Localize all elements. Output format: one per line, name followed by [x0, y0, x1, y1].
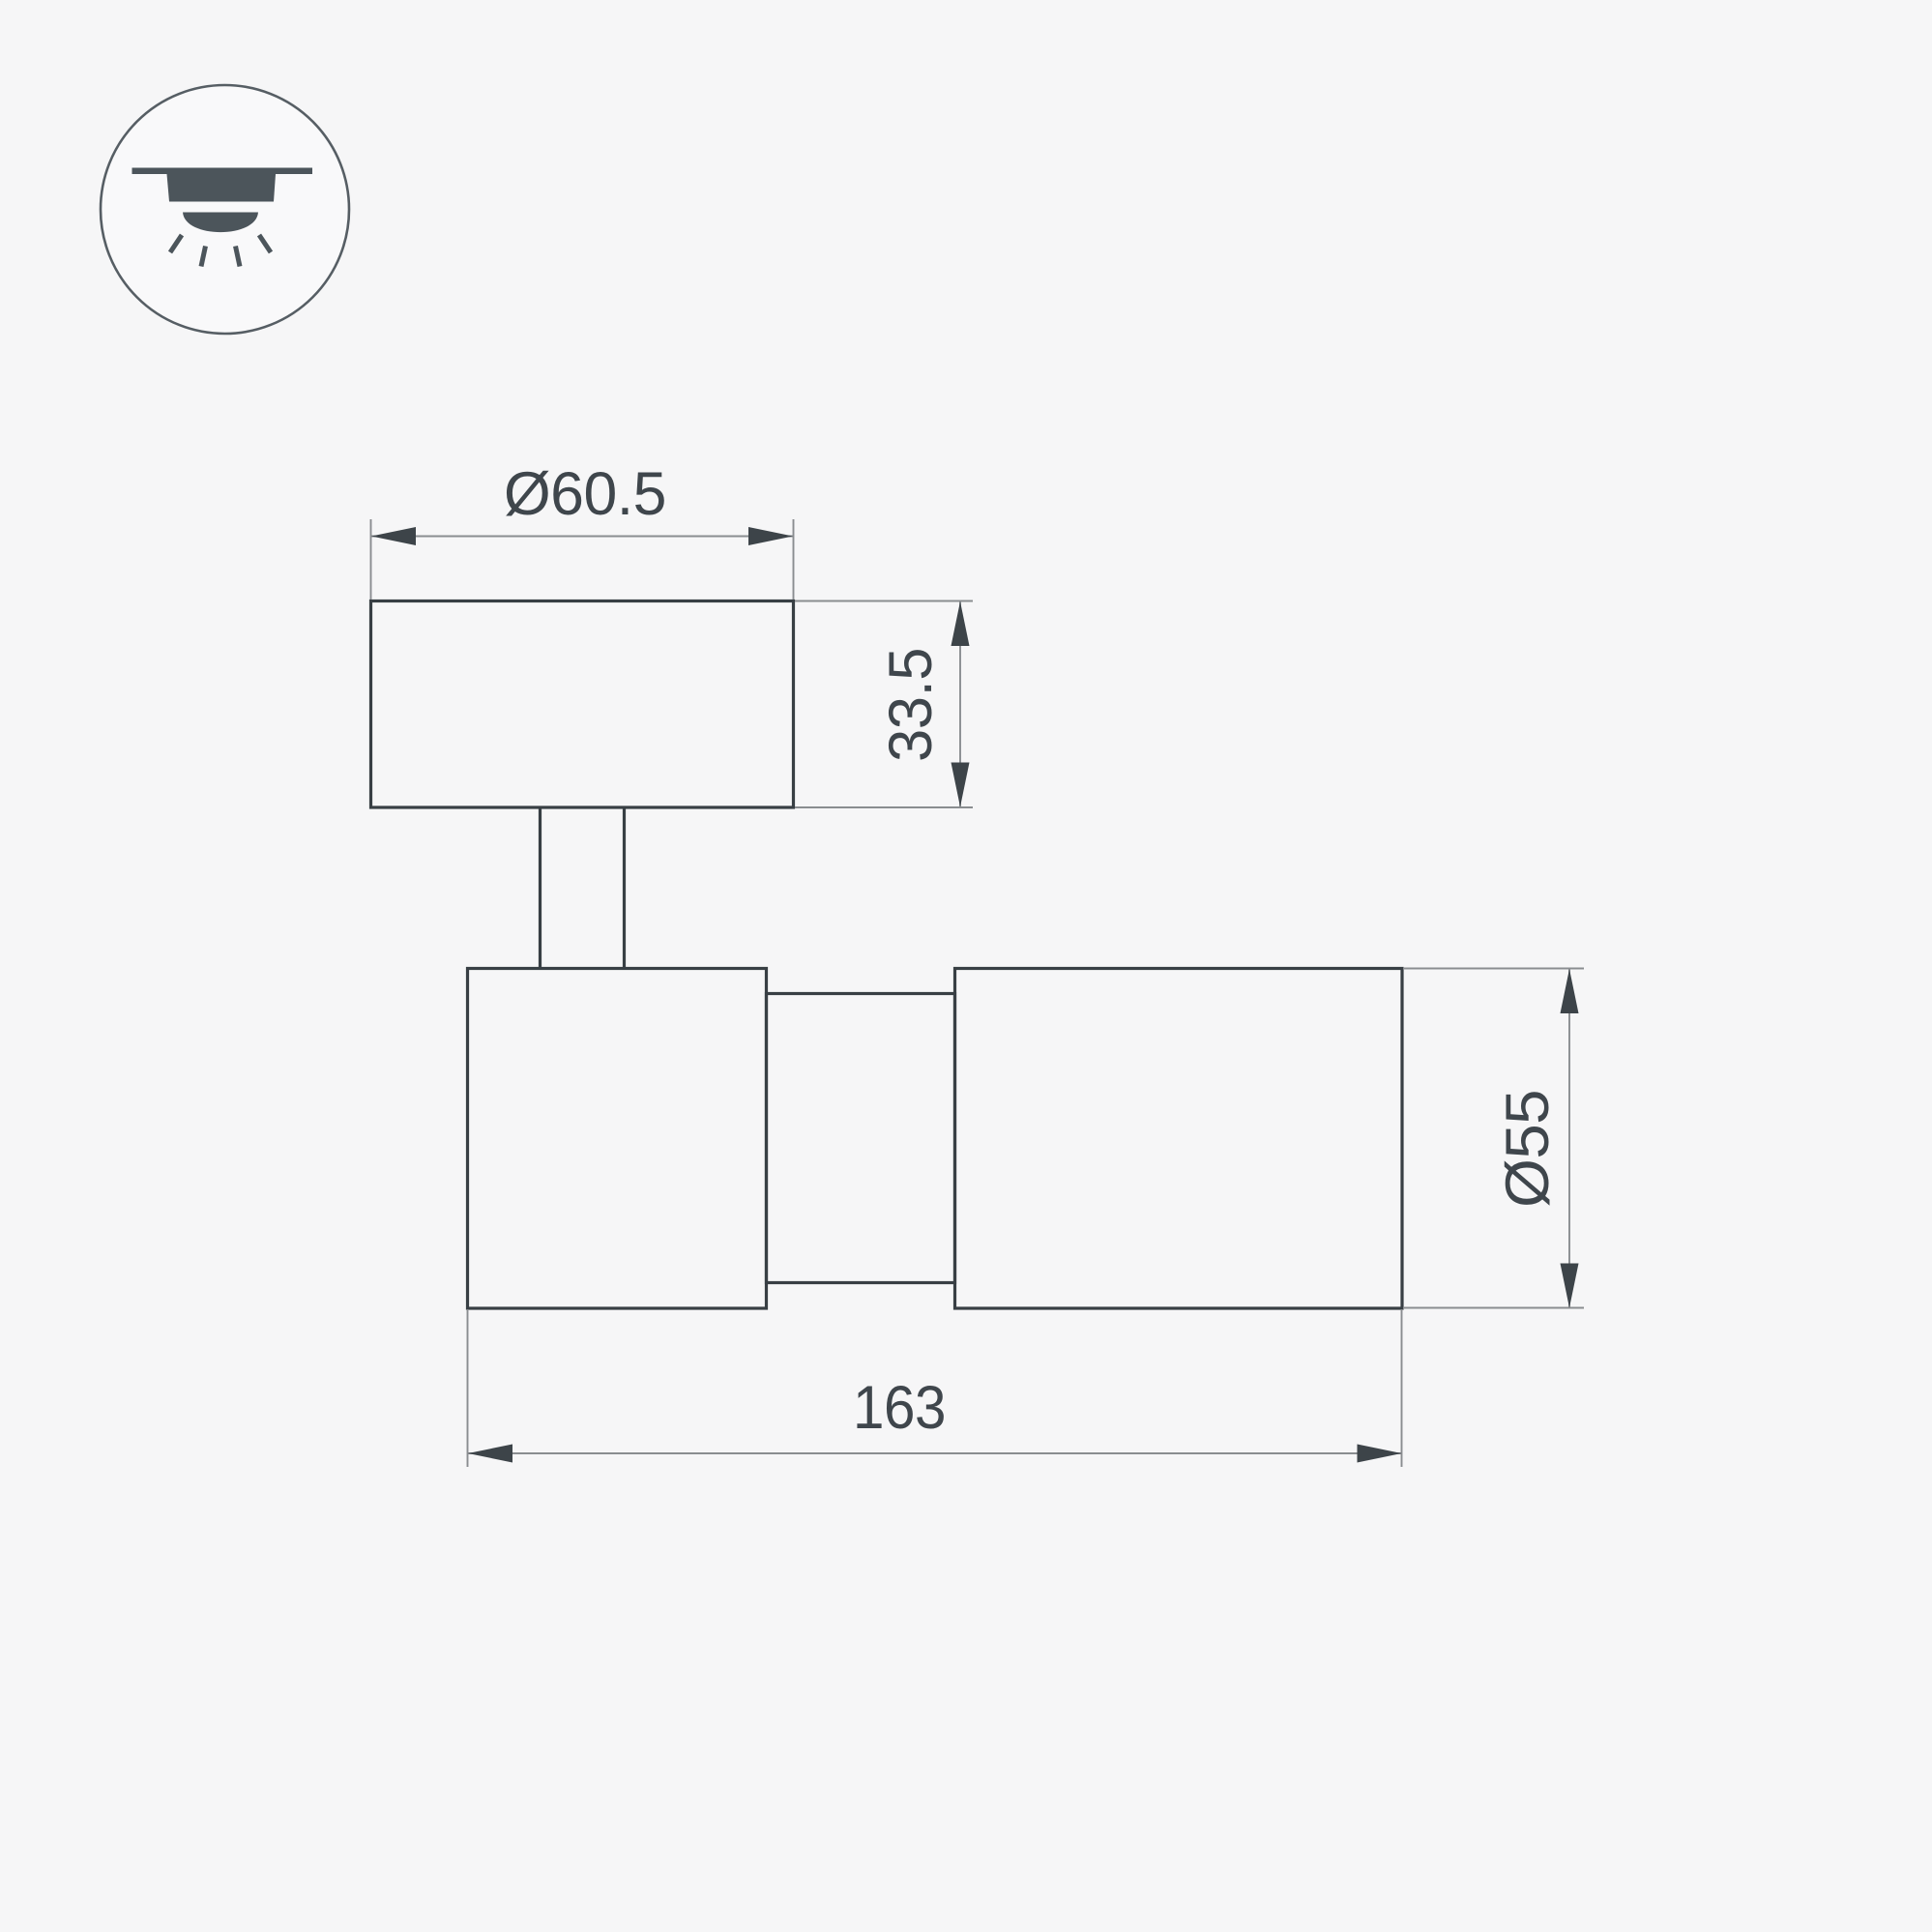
- ceiling-mount-downlight-icon: [101, 85, 349, 334]
- arrow-down-icon: [951, 763, 970, 807]
- arrow-right-icon: [748, 527, 793, 545]
- icon-circle: [101, 85, 349, 334]
- dimension-label-top-diameter: Ø60.5: [504, 460, 666, 528]
- technical-drawing-canvas: Ø60.5 33.5 Ø55 163: [0, 0, 1932, 1932]
- dimension-top-diameter: Ø60.5: [371, 460, 794, 600]
- dimension-label-total-length: 163: [853, 1374, 946, 1442]
- dimension-total-length: 163: [468, 1309, 1402, 1467]
- arrow-up-icon: [1561, 969, 1579, 1013]
- rear-body-outline: [955, 969, 1403, 1309]
- icon-ceiling-line: [132, 168, 313, 175]
- arrow-left-icon: [468, 1445, 512, 1463]
- arrow-right-icon: [1358, 1445, 1402, 1463]
- spotlight-head-outline: [468, 969, 767, 1309]
- arrow-up-icon: [951, 601, 970, 646]
- dimension-label-base-height: 33.5: [877, 648, 945, 762]
- icon-fixture-housing: [167, 174, 277, 202]
- dimension-label-body-diameter: Ø55: [1494, 1090, 1562, 1208]
- arrow-left-icon: [371, 527, 416, 545]
- mount-base-outline: [371, 601, 794, 808]
- spotlight-dimension-drawing: Ø60.5 33.5 Ø55 163: [0, 0, 1932, 1932]
- dimension-base-height: 33.5: [795, 601, 973, 808]
- dimension-body-diameter: Ø55: [1403, 969, 1584, 1308]
- arrow-down-icon: [1561, 1264, 1579, 1308]
- hinge-connector-outline: [767, 994, 955, 1283]
